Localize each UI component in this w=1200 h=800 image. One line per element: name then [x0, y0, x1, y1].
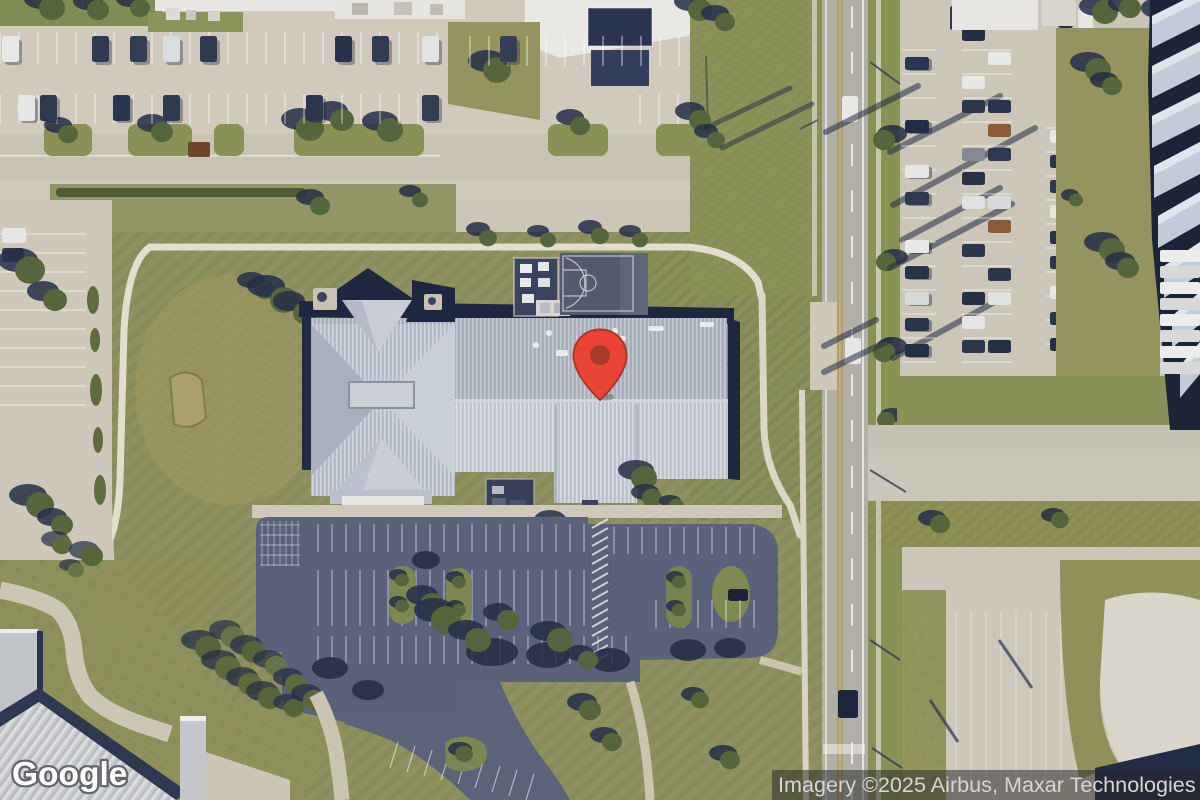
svg-text:Imagery ©2025 Airbus, Maxar Te: Imagery ©2025 Airbus, Maxar Technologies [778, 772, 1196, 797]
svg-text:Google: Google [12, 756, 127, 793]
